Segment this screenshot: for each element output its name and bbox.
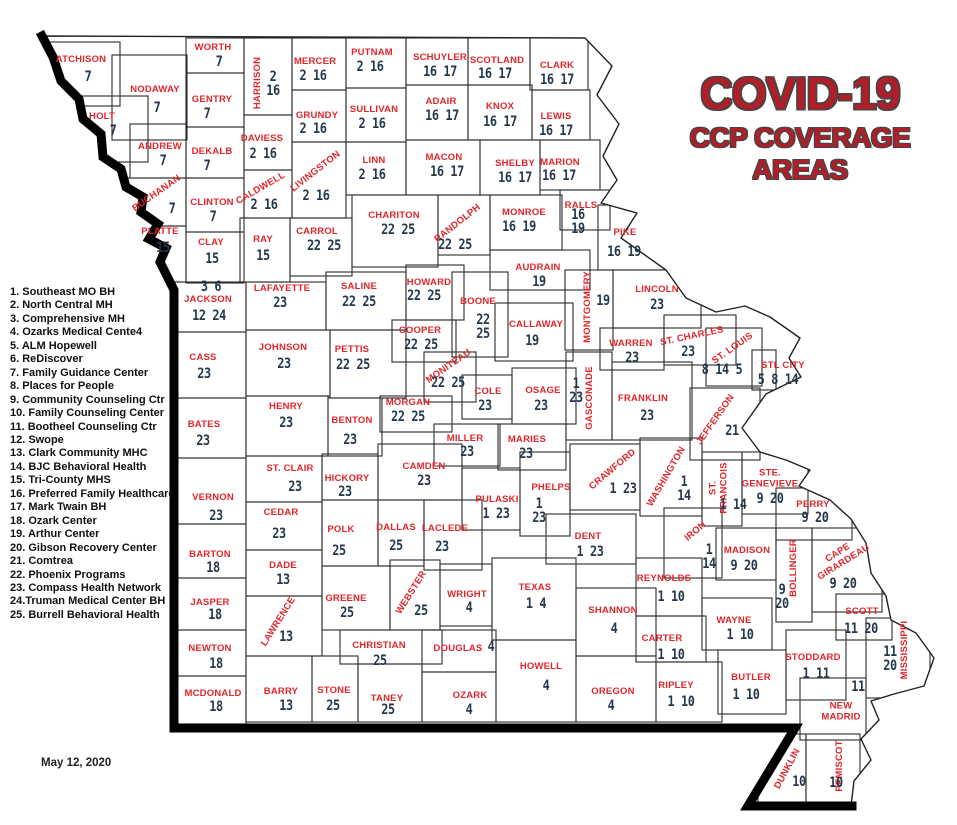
legend-item: 23. Compass Health Network — [10, 582, 174, 595]
legend-item: 9. Community Counseling Ctr — [10, 394, 174, 407]
legend-item: 2. North Central MH — [10, 299, 174, 312]
legend-item: 8. Places for People — [10, 380, 174, 393]
legend-item: 25. Burrell Behavioral Health — [10, 609, 174, 622]
legend-item: 22. Phoenix Programs — [10, 569, 174, 582]
legend-item: 18. Ozark Center — [10, 515, 174, 528]
title-covid19: COVID-19 — [650, 68, 950, 120]
legend-item: 13. Clark Community MHC — [10, 447, 174, 460]
legend-item: 7. Family Guidance Center — [10, 367, 174, 380]
legend-item: 6. ReDiscover — [10, 353, 174, 366]
legend-item: 11. Bootheel Counseling Ctr — [10, 421, 174, 434]
legend-item: 4. Ozarks Medical Cente4 — [10, 326, 174, 339]
title-ccp-coverage-areas: CCP COVERAGE AREAS — [650, 122, 950, 186]
legend-item: 19. Arthur Center — [10, 528, 174, 541]
legend-item: 24.Truman Medical Center BH — [10, 595, 174, 608]
legend-item: 17. Mark Twain BH — [10, 501, 174, 514]
legend-item: 16. Preferred Family Healthcare — [10, 488, 174, 501]
legend-item: 3. Comprehensive MH — [10, 313, 174, 326]
legend-item: 1. Southeast MO BH — [10, 286, 174, 299]
legend-item: 21. Comtrea — [10, 555, 174, 568]
covid-ccp-coverage-map-page: ATCHISON7NODAWAY7HOLT7ANDREW7BUCHANAN7PL… — [0, 0, 957, 825]
legend-item: 14. BJC Behavioral Health — [10, 461, 174, 474]
legend-item: 5. ALM Hopewell — [10, 340, 174, 353]
page-title: COVID-19 CCP COVERAGE AREAS — [650, 68, 950, 186]
legend-item: 12. Swope — [10, 434, 174, 447]
provider-legend: 1. Southeast MO BH2. North Central MH3. … — [10, 286, 174, 622]
map-date: May 12, 2020 — [41, 757, 111, 769]
legend-item: 20. Gibson Recovery Center — [10, 542, 174, 555]
legend-item: 15. Tri-County MHS — [10, 474, 174, 487]
legend-item: 10. Family Counseling Center — [10, 407, 174, 420]
